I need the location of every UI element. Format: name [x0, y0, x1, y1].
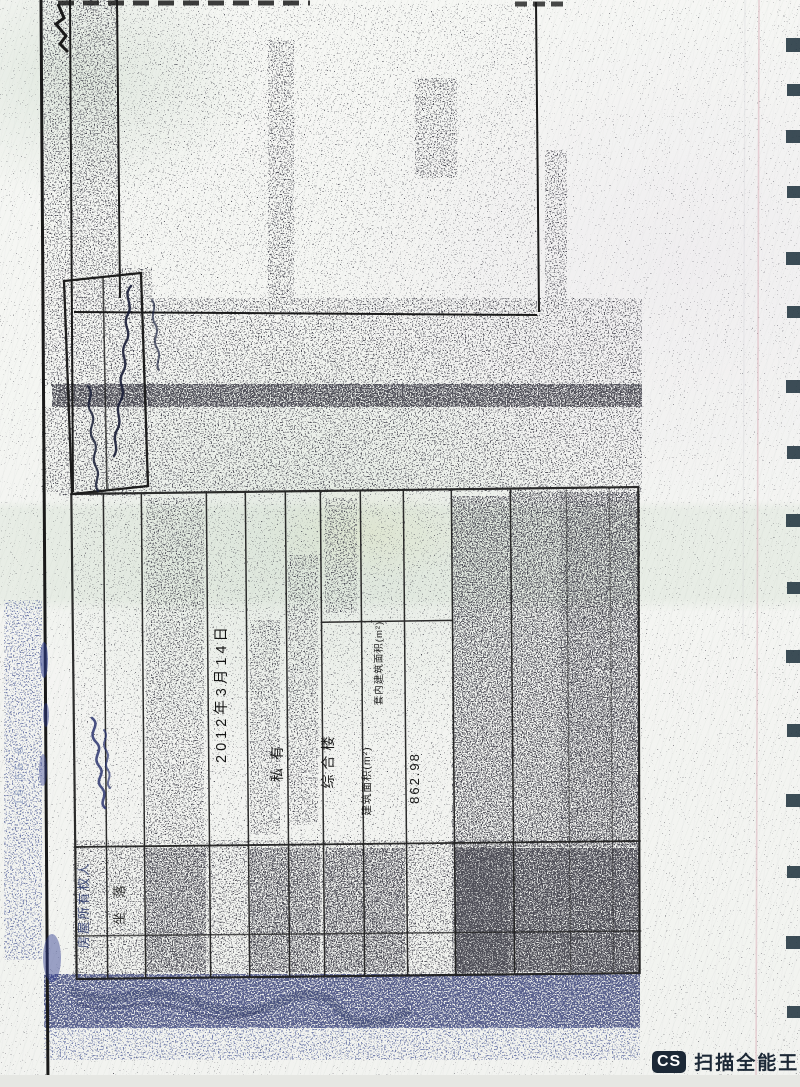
scan-artwork: 房屋所有权人 坐落 2012年3月14日 私有 综合楼 套内建筑面积(m²) 建…	[0, 0, 800, 1087]
edge-mark	[787, 1006, 800, 1018]
building-use-value: 综合楼	[320, 732, 336, 789]
edge-mark	[786, 514, 800, 527]
edge-mark	[786, 130, 800, 143]
camscanner-badge: CS	[652, 1051, 686, 1073]
edge-mark	[786, 38, 800, 52]
edge-mark	[787, 866, 800, 878]
edge-mark	[787, 306, 800, 318]
edge-mark	[786, 936, 800, 949]
owner-label: 房屋所有权人	[76, 861, 91, 948]
edge-mark	[787, 582, 800, 594]
camscanner-label: 扫描全能王	[694, 1048, 799, 1075]
edge-mark	[786, 380, 800, 393]
registration-date-value: 2012年3月14日	[213, 623, 230, 763]
location-label: 坐落	[112, 871, 127, 925]
edge-mark	[787, 84, 800, 96]
ownership-type-value: 私有	[269, 738, 285, 782]
noise-bottom-smear	[44, 974, 640, 1028]
edge-mark	[786, 650, 800, 663]
edge-mark	[787, 724, 800, 737]
scanned-document-page: 房屋所有权人 坐落 2012年3月14日 私有 综合楼 套内建筑面积(m²) 建…	[0, 0, 800, 1087]
camscanner-watermark: CS 扫描全能王	[652, 1048, 799, 1075]
scanner-bottom-strip	[0, 1075, 800, 1087]
inner-floor-area-label: 套内建筑面积(m²)	[373, 621, 385, 705]
edge-mark	[787, 186, 800, 198]
floor-area-label: 建筑面积(m²)	[360, 746, 373, 815]
edge-mark	[786, 794, 800, 807]
floor-area-value: 862.98	[407, 752, 422, 804]
edge-mark	[787, 446, 800, 459]
noise-top-left-margin	[42, 0, 118, 300]
margin-handwritten-note: 16.65.6	[12, 744, 26, 805]
edge-mark	[786, 252, 800, 265]
